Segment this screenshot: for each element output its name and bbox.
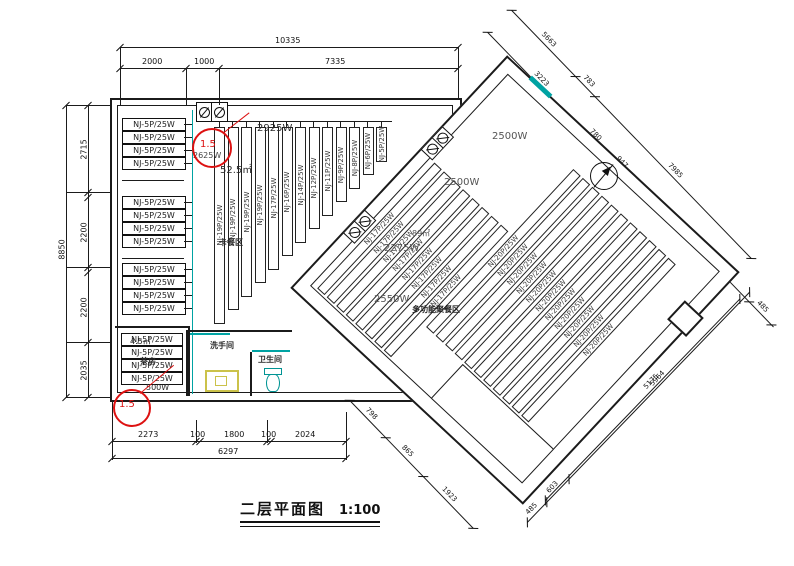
panel-box: NJ-5P/25W [122,235,186,248]
dim-label: 7335 [325,57,345,66]
lamp-strip: NJ-19P/25W [241,127,252,297]
dim-line [120,47,458,48]
lamp-strip-label: NJ-16P/25W [283,171,291,212]
washroom-wall [186,330,292,332]
dim-extension [186,68,187,105]
dim-label: 1923 [440,485,458,503]
panel-connector [184,308,192,309]
strip-feeder-stub [246,121,247,127]
dim-label: 6297 [218,447,238,456]
dim-tick [345,400,355,401]
panel-connector [184,163,192,164]
dim-label: 2024 [295,430,315,439]
dim-extension [66,397,112,398]
power-annotation: 2275W [384,243,419,254]
panel-connector [184,241,192,242]
strip-feeder-stub [354,121,355,127]
strip-feeder-stub [340,121,341,127]
dim-tick [590,96,600,97]
dim-extension [66,342,112,343]
dim-tick [507,10,517,11]
lamp-strip: NJ-19P/25W [255,127,266,283]
dim-extension [66,105,112,106]
dim-tick [766,324,776,325]
group-divider [122,258,184,259]
lamp-strip-label: NJ-19P/25W [229,198,237,239]
markup-text: 1.5 [119,399,135,410]
strip-feeder-line [200,121,392,122]
dim-line [112,458,346,459]
drawing-title: 二层平面图 [240,498,325,519]
dim-extension [346,412,347,460]
strip-feeder-stub [327,121,328,127]
dim-label: 2035 [80,360,89,380]
lamp-strip: NJ-17P/25W [268,127,279,270]
panel-box: NJ-5P/25W [122,222,186,235]
panel-box: NJ-5P/25W [122,144,186,157]
floor-plan-canvas: 洗手间 卫生间 4.5㎡ 茶房 500W 2625W 52.5㎡ 2925W 卡… [0,0,794,566]
title-underline [240,521,380,523]
dim-tick [545,495,546,505]
dim-extension [66,192,112,193]
panel-connector [184,124,192,125]
panel-connector [184,202,192,203]
lamp-strip: NJ-11P/25W [322,127,333,216]
dim-tick [744,301,754,302]
lamp-strip: NJ-9P/25W [336,127,347,202]
title-underline [240,526,380,527]
lamp-strip: NJ-12P/25W [309,127,320,229]
panel-box: NJ-5P/25W [122,263,186,276]
drawing-scale: 1:100 [339,503,380,518]
dim-tick [746,258,756,259]
panel-connector [184,282,192,283]
panel-connector [184,215,192,216]
panel-box: NJ-5P/25W [122,289,186,302]
lamp-strip-label: NJ-12P/25W [310,158,318,199]
dim-tick [749,287,750,297]
dim-label: 2273 [138,430,158,439]
dim-label: 1800 [224,430,244,439]
tea-room-label: 茶房 [140,356,156,367]
area-annotation: 89㎡ [412,228,430,239]
dim-tick [739,294,740,304]
panel-box: NJ-5P/25W [122,131,186,144]
lamp-strip-label: NJ-6P/25W [364,133,372,169]
strip-feeder-stub [300,121,301,127]
dim-label: 100 [261,430,276,439]
lamp-strip-label: NJ-19P/25W [243,191,251,232]
dim-extension [66,267,112,268]
panel-box: NJ-5P/25W [122,196,186,209]
lamp-strip: NJ-14P/25W [295,127,306,243]
toilet-label: 卫生间 [258,354,282,365]
strip-feeder-stub [367,121,368,127]
dim-label: 7985 [666,161,684,179]
lamp-strip-label: NJ-19P/25W [256,185,264,226]
panel-connector [184,295,192,296]
dim-tick [468,528,478,529]
power-annotation: 2500W [492,131,527,142]
dim-label: 2200 [80,222,89,242]
dim-label: 485 [524,501,539,516]
dim-label: 10335 [275,36,300,45]
power-annotation: 2550W [374,294,409,305]
tea-room-wall [188,326,190,396]
dim-label: 100 [190,430,205,439]
toilet-bowl [266,374,280,392]
dim-label: 1000 [194,57,214,66]
panel-connector [184,137,192,138]
panel-box: NJ-5P/25W [122,157,186,170]
distribution-box-icon [211,102,228,122]
zone-label: 多功能聚餐区 [412,304,460,315]
dim-label: 5663 [540,30,558,48]
lamp-strip: NJ-5P/25W [376,127,387,162]
panel-connector [184,150,192,151]
dim-extension [458,47,459,98]
panel-box: NJ-5P/25W [122,209,186,222]
group-divider [122,180,184,181]
strip-feeder-stub [381,121,382,127]
toilet-teal-wall [252,350,290,352]
zone-label: 卡餐区 [219,237,243,248]
dim-label: 2000 [142,57,162,66]
dim-label: 2715 [80,139,89,159]
lamp-strip: NJ-8P/25W [349,127,360,189]
dim-extension [120,47,121,105]
strip-feeder-stub [313,121,314,127]
panel-box: NJ-5P/25W [122,118,186,131]
strip-feeder-stub [219,121,220,127]
dim-tick [571,76,581,77]
lamp-strip-label: NJ-9P/25W [337,146,345,182]
dim-tick [381,437,391,438]
power-annotation: 2500W [444,177,479,188]
lamp-strip-label: NJ-14P/25W [297,164,305,205]
lamp-strip-label: NJ-8P/25W [351,140,359,176]
dim-line [112,441,346,442]
washroom-label: 洗手间 [210,340,234,351]
lamp-strip: NJ-6P/25W [363,127,374,175]
panel-box: NJ-5P/25W [122,276,186,289]
dim-tick [527,517,528,527]
dim-extension [219,68,220,105]
dim-line [120,68,458,69]
tea-room-area: 4.5㎡ [130,336,151,347]
dim-tick [418,476,428,477]
power-annotation: 2925W [257,123,292,134]
north-arrow-icon [590,162,618,190]
tea-room-wall [115,326,188,328]
washroom-divider-wall [250,352,252,396]
washroom-teal-wall [188,333,230,335]
markup-text: 1.5 [200,139,216,150]
dim-tick [483,32,493,33]
sink-basin [215,376,227,386]
panel-connector [184,228,192,229]
panel-box: NJ-5P/25W [122,302,186,315]
dim-label: 8850 [58,239,67,259]
dim-label: 2200 [80,297,89,317]
panel-connector [184,269,192,270]
lamp-strip-label: NJ-17P/25W [270,178,278,219]
lamp-strip: NJ-16P/25W [282,127,293,256]
lamp-strip-label: NJ-11P/25W [324,151,332,192]
lamp-strip-label: NJ-5P/25W [378,126,386,162]
drawing-title-block: 二层平面图1:100 [240,498,380,527]
